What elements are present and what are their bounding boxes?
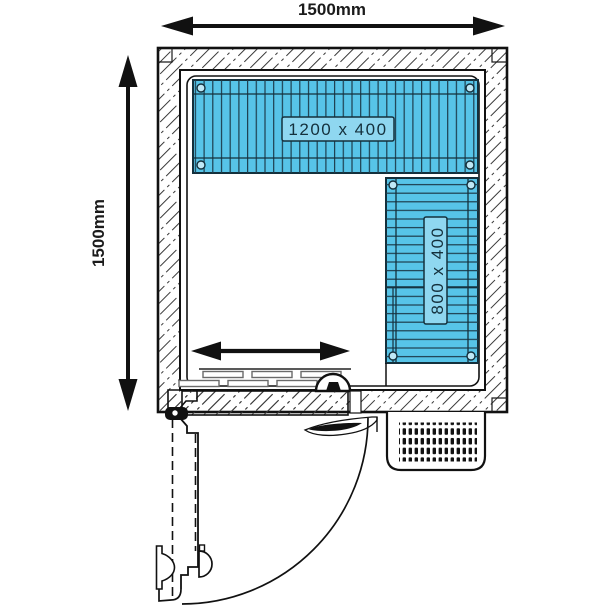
floor-plan-canvas: 1500mm 1500mm 12 <box>0 0 610 610</box>
top-dimension: 1500mm <box>161 0 505 36</box>
shelf-1200x400: 1200 x 400 <box>193 80 478 173</box>
hinge-pin-icon <box>172 410 177 415</box>
left-dimension-label: 1500mm <box>89 199 108 267</box>
external-door-handle <box>305 417 377 435</box>
door-sill <box>165 390 361 420</box>
door-swing-arc <box>182 418 368 604</box>
top-dimension-label: 1500mm <box>298 0 366 19</box>
left-dimension: 1500mm <box>89 55 138 411</box>
door-bottom-steps <box>181 547 198 589</box>
double-arrow-horizontal-icon <box>161 17 505 36</box>
clearance-arrow-icon <box>191 342 350 361</box>
door-knob <box>199 551 212 577</box>
vent-grille-holes <box>399 423 477 462</box>
open-door-leaf <box>157 418 213 601</box>
door-bottom-edge <box>159 588 181 601</box>
shelf-1200-label: 1200 x 400 <box>288 120 387 139</box>
floor-plan-drawing: 1500mm 1500mm 12 <box>0 0 610 610</box>
shelf-800-label: 800 x 400 <box>428 226 447 314</box>
door-jamb <box>350 391 361 413</box>
vent-grille <box>387 412 485 470</box>
shelf-800x400: 800 x 400 <box>386 178 478 386</box>
double-arrow-vertical-icon <box>119 55 138 411</box>
door-threshold <box>179 369 352 391</box>
